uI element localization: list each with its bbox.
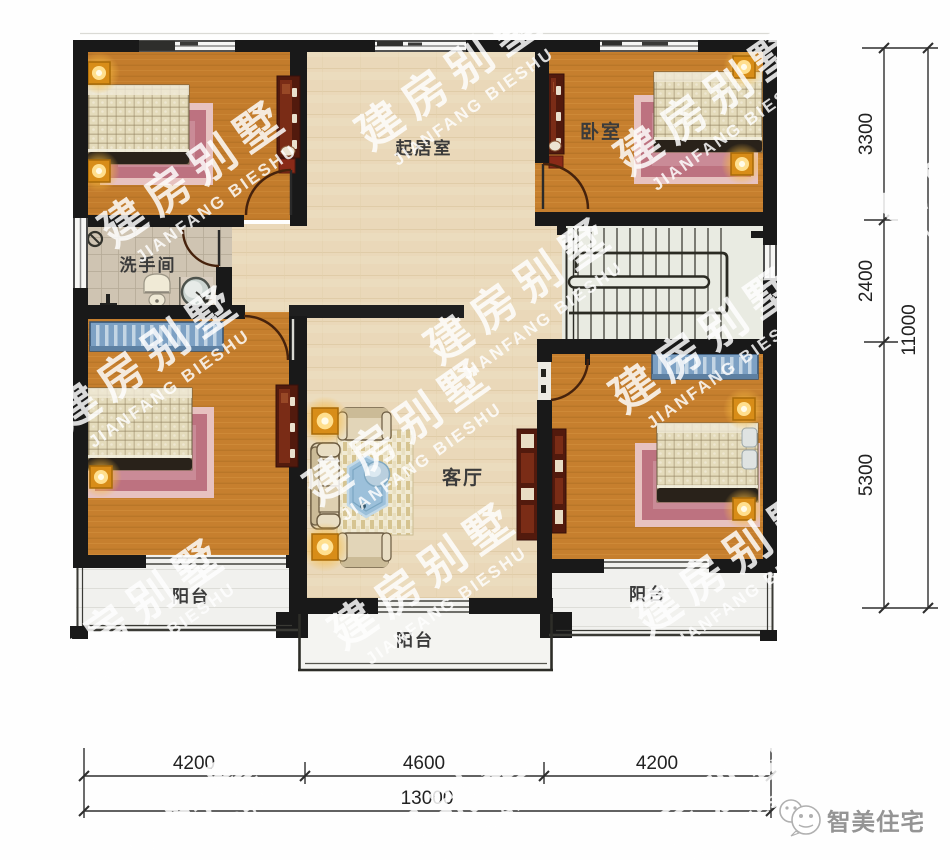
- svg-text:智美住宅: 智美住宅: [827, 808, 925, 835]
- svg-text:2400: 2400: [856, 260, 877, 302]
- svg-text:4600: 4600: [403, 753, 445, 774]
- svg-text:3300: 3300: [856, 113, 877, 155]
- svg-text:5300: 5300: [856, 454, 877, 496]
- svg-text:客厅: 客厅: [442, 466, 484, 489]
- svg-text:4200: 4200: [636, 753, 678, 774]
- svg-text:11000: 11000: [899, 304, 920, 355]
